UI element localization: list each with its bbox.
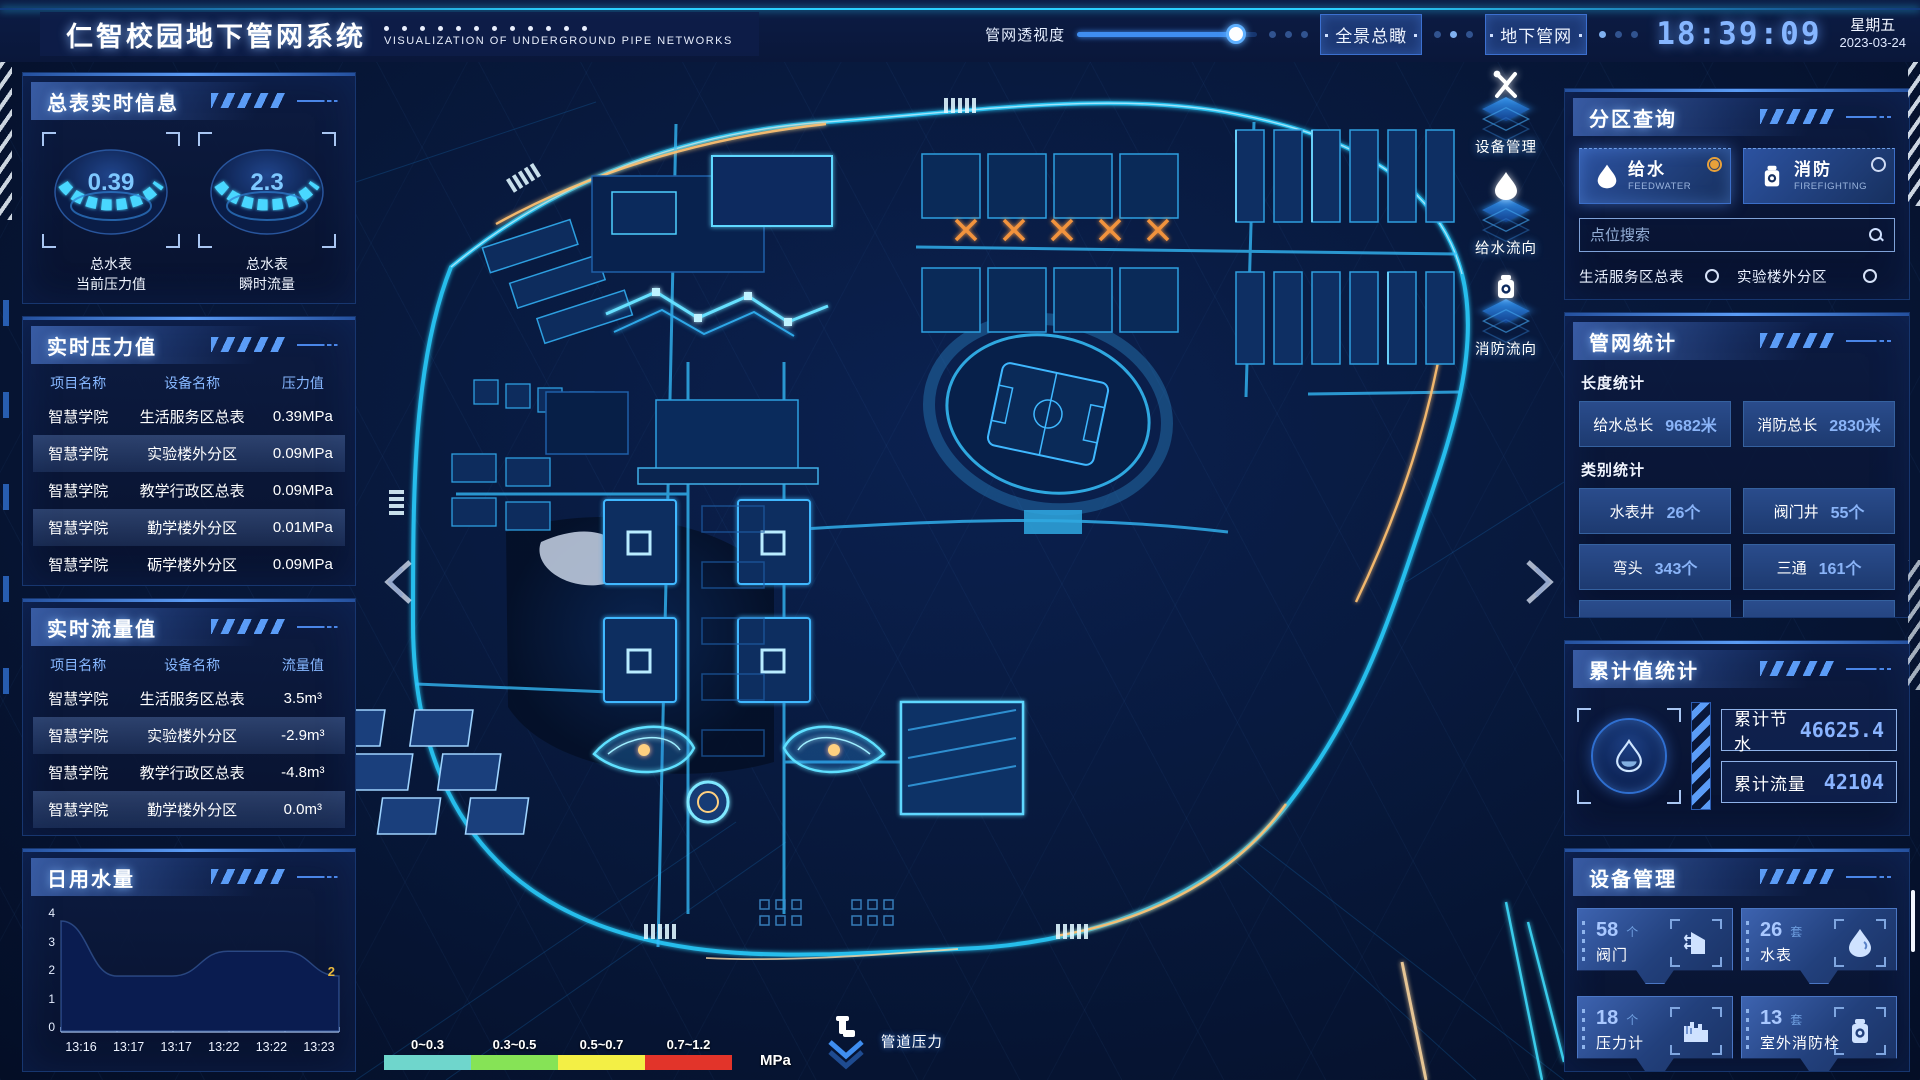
pipe-pressure-label: 管道压力 [881, 1031, 943, 1052]
clock: 18:39:09 [1656, 16, 1821, 52]
underground-pipes-button[interactable]: 地下管网 [1485, 14, 1587, 55]
legend-swatch [471, 1055, 558, 1070]
panel-header: 总表实时信息 [31, 82, 347, 120]
water-ring [1591, 718, 1667, 794]
list-item[interactable]: 实验楼外分区 [1737, 258, 1895, 294]
legend-range-4: 0.7~1.2 [645, 1037, 732, 1070]
daily-water-chart: 43 21 0 13:1613:17 13:1713:22 13:2213:23… [29, 906, 349, 1064]
line-decor [1846, 340, 1895, 342]
edge-marks-decor [3, 300, 9, 720]
pipe-transparency-slider[interactable] [1077, 25, 1257, 43]
panel-title: 分区查询 [1589, 103, 1677, 132]
table-header-row: 项目名称设备名称流量值 [33, 650, 345, 680]
gauge-frame: 0.39 [42, 132, 180, 248]
panel-daily-water: 日用水量 43 21 0 13:1613:17 13:1713:22 13:22… [22, 848, 356, 1072]
dots-decor [1599, 31, 1638, 38]
map-prev-arrow-icon[interactable] [380, 560, 414, 604]
x-axis-ticks: 13:1613:17 13:1713:22 13:2213:23 [59, 1040, 341, 1054]
feedwater-flow-overlay[interactable]: 给水流向 [1474, 171, 1538, 258]
stat-box [1579, 600, 1731, 618]
panel-header: 分区查询 [1573, 98, 1901, 136]
cumulative-values: 累计节水 46625.4 累计流量 42104 [1721, 709, 1897, 803]
slash-decor [1760, 109, 1834, 124]
device-card-grid: 58个 阀门 26套 水表 18个 压力计 [1565, 896, 1909, 1072]
length-stat-row: 给水总长9682米 消防总长2830米 [1565, 401, 1909, 447]
gauge-value: 2.3 [250, 169, 283, 196]
line-decor [1846, 876, 1895, 878]
panel-realtime-pressure: 实时压力值 项目名称设备名称压力值 智慧学院生活服务区总表0.39MPa 智慧学… [22, 316, 356, 586]
legend-range-2: 0.3~0.5 [471, 1037, 558, 1070]
slash-decor [1760, 869, 1834, 884]
date: 2023-03-24 [1840, 35, 1907, 51]
edge-hatch-decor [1908, 560, 1920, 690]
pipe-pressure-icon [817, 1014, 875, 1070]
line-decor [1846, 116, 1895, 118]
outdoor-hydrant-card[interactable]: 13套 室外消防栓 [1741, 996, 1897, 1072]
app-subtitle-block: VISUALIZATION OF UNDERGROUND PIPE NETWOR… [384, 22, 733, 47]
flow-table: 项目名称设备名称流量值 智慧学院生活服务区总表3.5m³ 智慧学院实验楼外分区-… [33, 650, 345, 836]
total-flow: 累计流量 42104 [1721, 761, 1897, 803]
legend-range-label: 0~0.3 [411, 1037, 444, 1052]
weekday: 星期五 [1850, 17, 1895, 36]
type-stat-row-clipped [1565, 600, 1909, 618]
line-decor [1846, 668, 1895, 670]
header-controls: 管网透视度 全景总瞰 地下管网 18:39:09 星期五 2023-03-24 [985, 14, 1906, 54]
overview-button[interactable]: 全景总瞰 [1320, 14, 1422, 55]
pressure-legend: 0~0.3 0.3~0.5 0.5~0.7 0.7~1.2 MPa [384, 1014, 943, 1070]
hydrant-icon [1493, 272, 1519, 302]
waterdrop-icon [1493, 171, 1519, 201]
panel-pipe-stats: 管网统计 长度统计 给水总长9682米 消防总长2830米 类别统计 水表井26… [1564, 312, 1910, 618]
total-saved-water: 累计节水 46625.4 [1721, 709, 1897, 751]
pressure-gauge-icon [1670, 1007, 1722, 1055]
gauge-label: 总水表 瞬时流量 [239, 254, 295, 295]
waterdrop-icon [1596, 163, 1618, 190]
hydrant-icon [1760, 163, 1784, 190]
title-dots-decor [384, 26, 733, 31]
point-search-box [1579, 218, 1895, 252]
valve-icon [1670, 919, 1722, 967]
device-manage-overlay[interactable]: 设备管理 [1474, 70, 1538, 157]
outdoor-hydrant-icon [1834, 1007, 1886, 1055]
app-title: 仁智校园地下管网系统 [66, 15, 366, 54]
header-bar: 仁智校园地下管网系统 VISUALIZATION OF UNDERGROUND … [0, 0, 1920, 62]
slash-decor [211, 619, 285, 634]
panel-header: 累计值统计 [1573, 650, 1901, 688]
series-end-value: 2 [328, 964, 335, 979]
pressure-gauge-card[interactable]: 18个 压力计 [1577, 996, 1733, 1072]
table-row: 智慧学院勤学楼外分区0.0m³ [33, 791, 345, 828]
waterdrop-icon [1615, 739, 1643, 773]
line-decor [297, 344, 341, 346]
slider-fill [1077, 32, 1235, 37]
panel-header: 设备管理 [1573, 858, 1901, 896]
dots-decor [1269, 31, 1308, 38]
panel-title: 日用水量 [47, 863, 135, 892]
list-item[interactable]: 生活服务区总表 [1579, 258, 1737, 294]
panel-title: 实时压力值 [47, 331, 157, 360]
gauge-dial-icon: 2.3 [198, 132, 336, 248]
gauge-value: 0.39 [88, 169, 135, 196]
panel-title: 总表实时信息 [47, 87, 179, 116]
table-row: 智慧学院实验楼外分区-2.9m³ [33, 717, 345, 754]
panel-cumulative-stats: 累计值统计 累计节水 46625.4 累计流量 42104 [1564, 640, 1910, 836]
app-title-block: 仁智校园地下管网系统 VISUALIZATION OF UNDERGROUND … [40, 12, 759, 56]
panel-device-manage: 设备管理 58个 阀门 26套 水表 18个 [1564, 848, 1910, 1072]
water-meter-icon [1834, 919, 1886, 967]
list-item[interactable]: 勤学楼外分区 [1737, 294, 1895, 300]
zone-point-list: 生活服务区总表 实验楼外分区 教学行政区总表 勤学楼外分区 砺学楼外分区 宿舍区… [1565, 252, 1909, 300]
point-radio[interactable] [1705, 269, 1719, 283]
table-row-clipped: 智慧学院砺学楼外分区2.3m³ [33, 828, 345, 836]
edge-hatch-decor [1908, 56, 1920, 206]
wrench-icon [1491, 70, 1521, 100]
legend-range-label: 0.7~1.2 [667, 1037, 711, 1052]
stat-box: 弯头343个 [1579, 544, 1731, 590]
flow-gauge: 2.3 总水表 瞬时流量 [196, 132, 338, 300]
app-subtitle: VISUALIZATION OF UNDERGROUND PIPE NETWOR… [384, 35, 733, 47]
map-next-arrow-icon[interactable] [1524, 560, 1558, 604]
legend-range-1: 0~0.3 [384, 1037, 471, 1070]
edge-hatch-decor [0, 40, 12, 220]
slider-thumb[interactable] [1226, 24, 1246, 44]
map-overlay-stack: 设备管理 给水流向 消防流向 [1474, 70, 1538, 359]
panel-header: 实时流量值 [31, 608, 347, 646]
valve-card[interactable]: 58个 阀门 [1577, 908, 1733, 984]
firefighting-button[interactable]: 消防 FIREFIGHTING [1743, 148, 1895, 204]
panel-realtime-flow: 实时流量值 项目名称设备名称流量值 智慧学院生活服务区总表3.5m³ 智慧学院实… [22, 598, 356, 836]
search-icon[interactable] [1868, 227, 1884, 243]
table-row: 智慧学院生活服务区总表0.39MPa [33, 398, 345, 435]
panel-header: 管网统计 [1573, 322, 1901, 360]
y-axis-ticks: 43 21 0 [37, 906, 55, 1034]
table-row-clipped: 智慧学院砺学楼外分区0.09MPa [33, 546, 345, 583]
dots-decor [1434, 31, 1473, 38]
feedwater-radio[interactable] [1707, 157, 1722, 172]
table-row: 智慧学院教学行政区总表-4.8m³ [33, 754, 345, 791]
legend-unit: MPa [760, 1052, 791, 1069]
firefighting-radio[interactable] [1871, 157, 1886, 172]
slash-decor [1760, 333, 1834, 348]
stat-box: 阀门井55个 [1743, 488, 1895, 534]
point-radio[interactable] [1863, 269, 1877, 283]
transparency-label: 管网透视度 [985, 24, 1065, 45]
panel-header: 日用水量 [31, 858, 347, 896]
stat-box: 三通161个 [1743, 544, 1895, 590]
pressure-gauge: 0.39 总水表 当前压力值 [40, 132, 182, 300]
campus-3d-map[interactable]: 设备管理 给水流向 消防流向 0~0.3 0.3~0.5 [356, 62, 1564, 1080]
stat-box [1743, 600, 1895, 618]
type-stats-subtitle: 类别统计 [1581, 459, 1893, 480]
table-row: 智慧学院勤学楼外分区0.01MPa [33, 509, 345, 546]
right-scrollbar[interactable] [1911, 890, 1915, 952]
type-stat-row: 水表井26个 阀门井55个 [1565, 488, 1909, 534]
point-search-input[interactable] [1580, 227, 1868, 244]
panel-meter-realtime: 总表实时信息 0.39 总水表 当前压力值 [22, 72, 356, 304]
legend-swatch [645, 1055, 732, 1070]
feedwater-en: FEEDWATER [1628, 181, 1691, 192]
panel-title: 累计值统计 [1589, 655, 1699, 684]
stripe-decor [1691, 702, 1711, 810]
slash-decor [1760, 661, 1834, 676]
table-row: 智慧学院生活服务区总表3.5m³ [33, 680, 345, 717]
feedwater-button[interactable]: 给水 FEEDWATER [1579, 148, 1731, 204]
line-decor [297, 100, 341, 102]
pressure-table: 项目名称设备名称压力值 智慧学院生活服务区总表0.39MPa 智慧学院实验楼外分… [33, 368, 345, 583]
table-header-row: 项目名称设备名称压力值 [33, 368, 345, 398]
legend-swatch [384, 1055, 471, 1070]
legend-range-3: 0.5~0.7 [558, 1037, 645, 1070]
stat-box: 消防总长2830米 [1743, 401, 1895, 447]
panel-title: 实时流量值 [47, 613, 157, 642]
gauge-label: 总水表 当前压力值 [76, 254, 146, 295]
line-decor [297, 876, 341, 878]
line-decor [297, 626, 341, 628]
stat-box: 给水总长9682米 [1579, 401, 1731, 447]
panel-title: 设备管理 [1589, 863, 1677, 892]
firefighting-en: FIREFIGHTING [1794, 181, 1867, 192]
type-stat-row: 弯头343个 三通161个 [1565, 544, 1909, 590]
table-row: 智慧学院教学行政区总表0.09MPa [33, 472, 345, 509]
gauge-frame: 2.3 [198, 132, 336, 248]
panel-zone-query: 分区查询 给水 FEEDWATER 消防 FIREFIGHTING [1564, 88, 1910, 300]
cumulative-body: 累计节水 46625.4 累计流量 42104 [1565, 688, 1909, 810]
legend-range-label: 0.3~0.5 [493, 1037, 537, 1052]
legend-range-label: 0.5~0.7 [580, 1037, 624, 1052]
water-badge [1577, 708, 1681, 804]
date-block: 星期五 2023-03-24 [1840, 17, 1907, 52]
slash-decor [211, 337, 285, 352]
campus-map-canvas [356, 62, 1564, 1080]
area-chart-canvas [59, 910, 341, 1036]
water-meter-card[interactable]: 26套 水表 [1741, 908, 1897, 984]
slash-decor [211, 869, 285, 884]
zone-type-toggle: 给水 FEEDWATER 消防 FIREFIGHTING [1565, 136, 1909, 204]
firefighting-label: 消防 [1794, 160, 1867, 180]
gauge-dial-icon: 0.39 [42, 132, 180, 248]
table-row: 智慧学院实验楼外分区0.09MPa [33, 435, 345, 472]
list-item[interactable]: 教学行政区总表 [1579, 294, 1737, 300]
fire-flow-overlay[interactable]: 消防流向 [1474, 272, 1538, 359]
stat-box: 水表井26个 [1579, 488, 1731, 534]
feedwater-label: 给水 [1628, 160, 1691, 180]
legend-swatch [558, 1055, 645, 1070]
panel-title: 管网统计 [1589, 327, 1677, 356]
slash-decor [211, 93, 285, 108]
panel-header: 实时压力值 [31, 326, 347, 364]
gauge-row: 0.39 总水表 当前压力值 [23, 120, 355, 300]
length-stats-subtitle: 长度统计 [1581, 372, 1893, 393]
